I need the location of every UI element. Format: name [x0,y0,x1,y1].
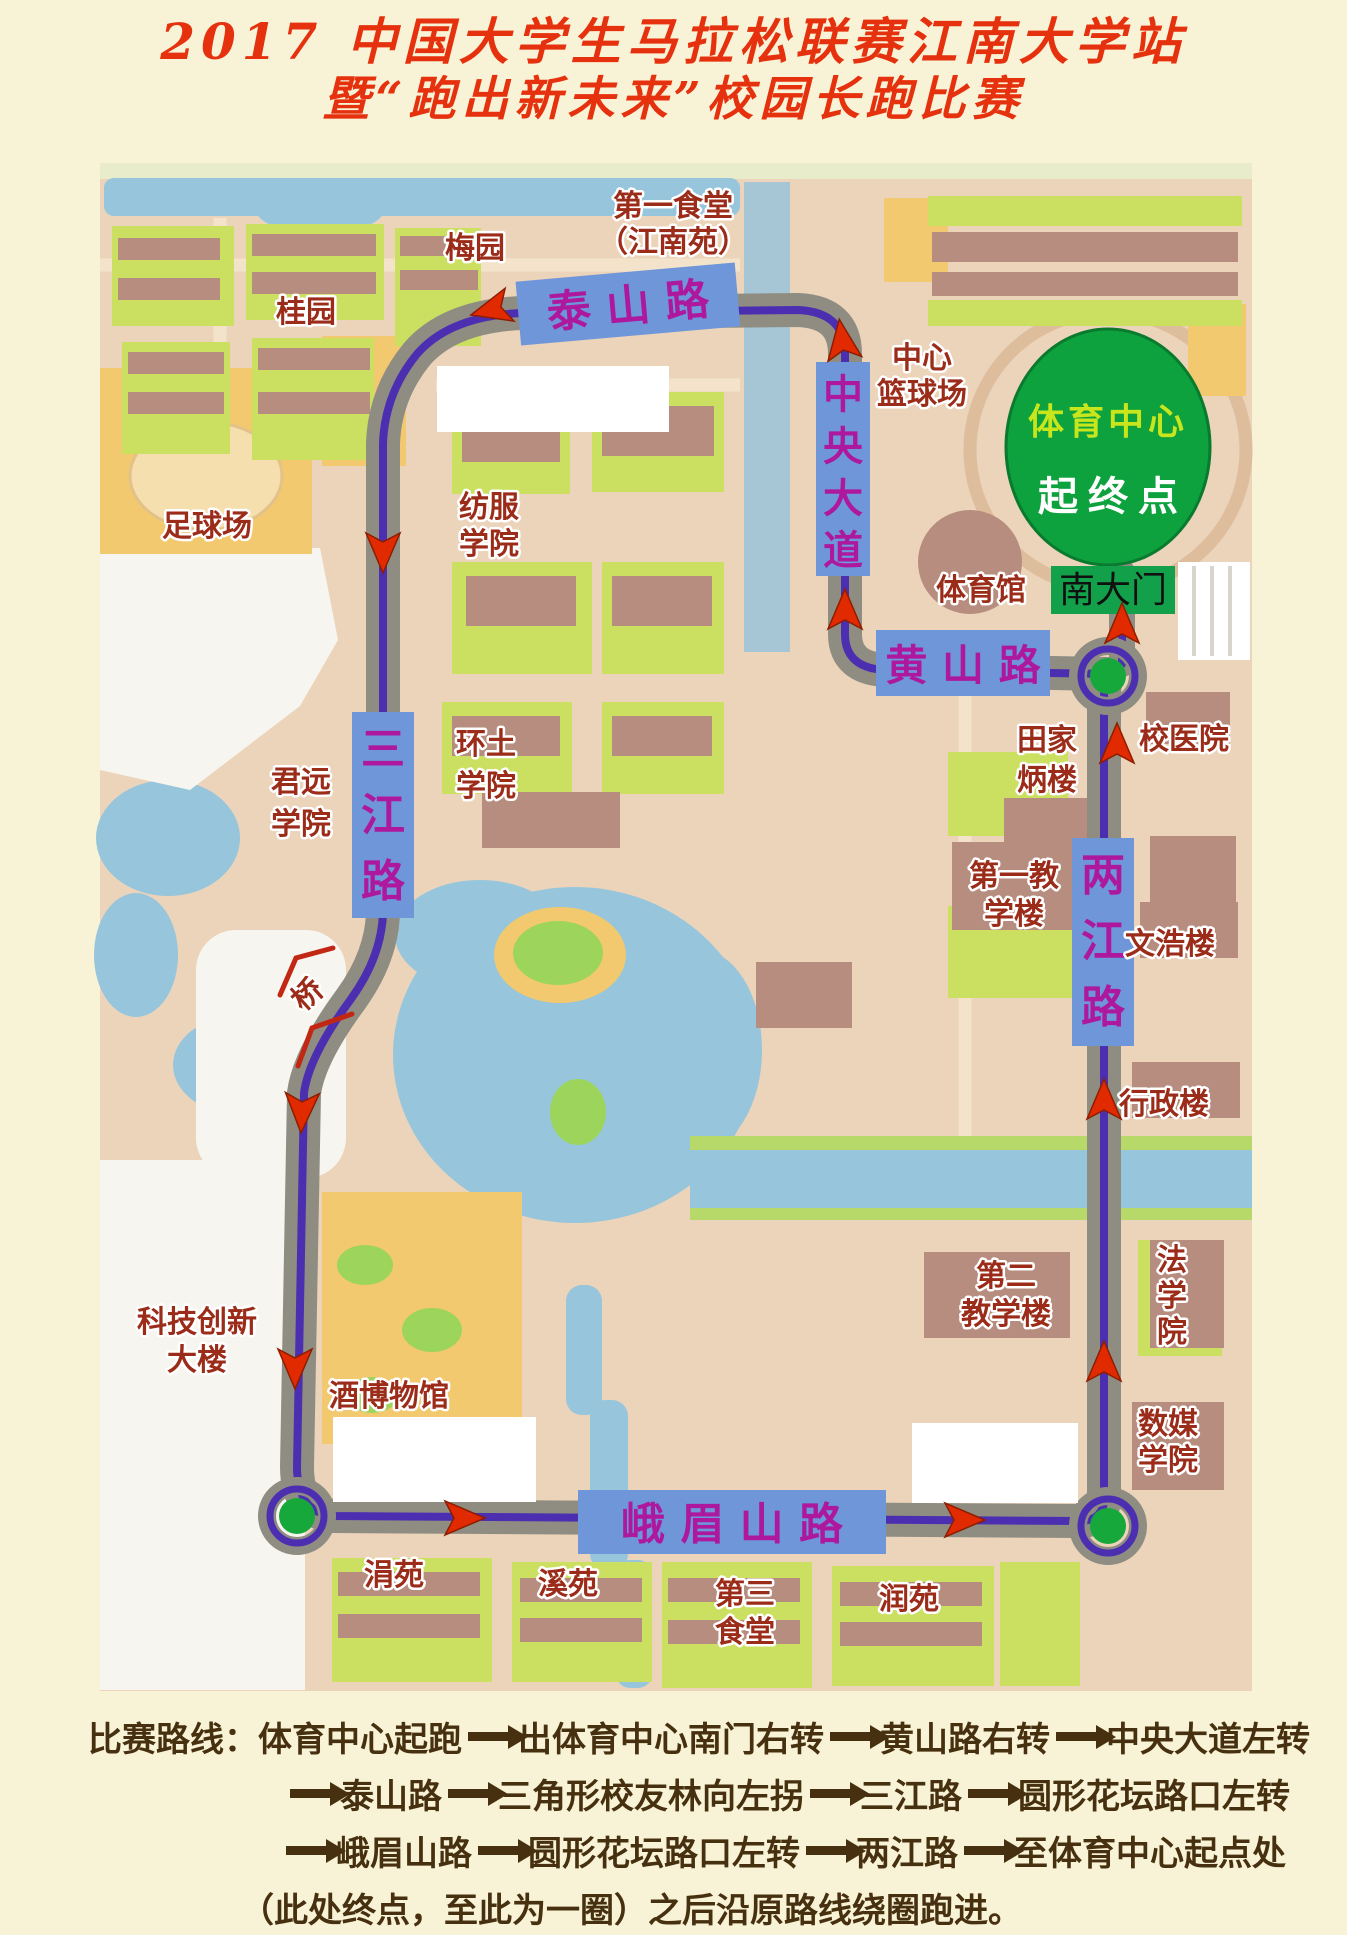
blank-label-patch [333,1417,536,1502]
road-banner-text: 三 [361,724,405,775]
label-no2-teaching-building: 教学楼 [961,1297,1051,1332]
water-area [638,950,762,1150]
label-xiyuan-dorm: 溪苑 [538,1567,598,1602]
route-step: 两江路 [856,1826,958,1875]
road-banner-text: 道 [823,528,863,574]
label-law-school: 法 [1157,1243,1187,1278]
road-banner-zhongyang: 中 央 大 道 [816,362,870,576]
route-step: 圆形花坛路口左转 [528,1826,800,1875]
right-arrow-icon [964,1846,1004,1855]
route-step: 三江路 [860,1769,962,1818]
building-block [118,278,220,300]
right-arrow-icon [830,1732,870,1741]
water-area [566,1285,602,1415]
label-scitech-building: 大楼 [167,1343,227,1378]
label-junyuan-college: 君远 [271,765,331,800]
building-block [932,232,1238,262]
route-step: 中央大道左转 [1106,1712,1310,1761]
water-area [94,893,178,1017]
route-description-row: 峨眉山路圆形花坛路口左转两江路至体育中心起点处 [280,1822,1278,1879]
label-juanyuan-dorm: 涓苑 [364,1558,424,1593]
label-basketball-court: 中心 [892,341,952,376]
building-block [118,238,220,260]
building-block [252,272,376,294]
road-banner-text: 中 [823,372,863,418]
route-description-row: （此处终点，至此为一圈）之后沿原路线绕圈跑进。 [240,1879,1278,1935]
label-wine-museum: 酒博物馆 [329,1379,449,1414]
roundabout-southeast [1078,1496,1138,1556]
tree-patch [337,1245,393,1285]
map-edge [100,163,1252,179]
page: 2017 中国大学生马拉松联赛江南大学站 暨“跑出新未来”校园长跑比赛 [0,0,1347,1935]
building-block [258,348,370,370]
label-basketball-court: 篮球场 [877,377,967,412]
road-banner-text: 江 [1081,916,1125,967]
label-runyuan-dorm: 润苑 [879,1582,939,1617]
page-title: 2017 中国大学生马拉松联赛江南大学站 暨“跑出新未来”校园长跑比赛 [0,12,1347,128]
label-no1-canteen: 第一食堂 [613,189,733,224]
campus-map: 泰 山 路 中 央 大 道 黄 山 路 三 江 路 两 江 路 峨 眉 山 路 [0,0,1347,1935]
route-description-row: 比赛路线：体育中心起跑出体育中心南门右转黄山路右转中央大道左转 [88,1708,1278,1765]
road-banner-text: 黄 山 路 [885,641,1041,690]
lawn-patch [1000,1562,1080,1686]
building-block [840,1622,982,1646]
roundabout-center [279,1498,315,1534]
right-arrow-icon [1056,1732,1096,1741]
start-finish-ellipse [1006,329,1210,565]
water-area [690,1150,1252,1208]
building-block [252,234,376,256]
label-junyuan-college: 学院 [271,807,331,842]
right-arrow-icon [286,1846,326,1855]
right-arrow-icon [968,1789,1008,1798]
label-law-school: 院 [1157,1315,1187,1350]
roundabout-center [1090,658,1126,694]
building-block [612,576,712,626]
label-no2-teaching-building: 第二 [976,1259,1036,1294]
building-block [932,272,1238,296]
river-bank [690,1136,1252,1150]
label-no1-teaching-building: 学楼 [984,897,1044,932]
route-description: 比赛路线：体育中心起跑出体育中心南门右转黄山路右转中央大道左转泰山路三角形校友林… [88,1708,1278,1935]
right-arrow-icon [290,1789,330,1798]
parking-strip [1178,562,1250,660]
title-line-2: 暨“跑出新未来”校园长跑比赛 [0,72,1347,128]
title-line-1: 2017 中国大学生马拉松联赛江南大学站 [0,12,1347,72]
label-football-field: 足球场 [162,509,252,544]
right-arrow-icon [468,1732,508,1741]
ground-patch [100,1160,305,1690]
label-law-school: 学 [1157,1279,1187,1314]
route-description-prefix: 比赛路线： [88,1712,258,1761]
route-step: 黄山路右转 [880,1712,1050,1761]
label-school-hospital: 校医院 [1139,722,1229,757]
water-area [96,780,240,896]
road-banner-text: 大 [823,476,863,522]
label-textile-college: 学院 [459,527,519,562]
route-step: 体育中心起跑 [258,1712,462,1761]
road-banner-text: 峨 眉 山 路 [621,1499,844,1550]
label-environment-college: 学院 [456,769,516,804]
right-arrow-icon [478,1846,518,1855]
building-block [400,270,478,290]
roundabout-northeast [1078,646,1138,706]
route-step: 峨眉山路 [336,1826,472,1875]
label-digital-media-college: 学院 [1138,1443,1198,1478]
building-block [338,1614,480,1638]
label-scitech-building: 科技创新 [137,1305,257,1340]
building-block [258,392,370,414]
building-block [466,576,576,626]
blank-label-patch [437,366,669,432]
building-block [756,962,852,1028]
label-tianjiabing-building: 炳楼 [1017,763,1077,798]
label-gymnasium: 体育馆 [936,573,1026,608]
road-banner-huangshan: 黄 山 路 [876,630,1050,696]
route-description-row: 泰山路三角形校友林向左拐三江路圆形花坛路口左转 [284,1765,1278,1822]
start-finish-text: 体育中心 [1028,402,1188,443]
route-step: 圆形花坛路口左转 [1018,1769,1290,1818]
right-arrow-icon [810,1789,850,1798]
south-gate-label: 南大门 [1051,566,1175,614]
route-step: 三角形校友林向左拐 [498,1769,804,1818]
river-bank [690,1208,1252,1220]
label-no1-canteen: （江南苑） [598,225,748,260]
label-environment-college: 环土 [456,727,516,762]
south-gate-text: 南大门 [1059,570,1167,611]
tree-patch [513,921,603,985]
label-digital-media-college: 数媒 [1138,1407,1199,1442]
building-block [612,716,712,756]
right-arrow-icon [448,1789,488,1798]
label-wenhao-building: 文浩楼 [1125,927,1215,962]
roundabout-center [1090,1508,1126,1544]
right-arrow-icon [806,1846,846,1855]
blank-label-patch [912,1423,1078,1503]
road-banner-text: 路 [1081,982,1126,1033]
label-tianjiabing-building: 田家 [1017,723,1077,758]
route-step: 至体育中心起点处 [1014,1826,1286,1875]
road-banner-sanjiang: 三 江 路 [352,712,414,918]
road-banner-emeishan: 峨 眉 山 路 [578,1490,886,1554]
building-block [128,352,224,374]
start-finish-text: 起终点 [1038,474,1188,520]
label-no3-canteen: 食堂 [715,1615,775,1650]
lawn-patch [928,300,1242,326]
label-no3-canteen: 第三 [715,1577,775,1612]
label-admin-building: 行政楼 [1118,1087,1209,1122]
route-step: 出体育中心南门右转 [518,1712,824,1761]
building-block [520,1618,642,1642]
label-textile-college: 纺服 [459,490,520,525]
road-banner-text: 央 [823,424,864,470]
start-finish-area: 体育中心 起终点 [1006,329,1210,565]
route-step: 泰山路 [340,1769,442,1818]
road-banner-text: 路 [361,856,406,907]
lawn-patch [928,196,1242,226]
label-no1-teaching-building: 第一教 [969,859,1059,894]
tree-patch [550,1079,606,1145]
label-meiyuan: 梅园 [445,231,505,266]
tree-patch [402,1308,462,1352]
building-block [128,392,224,414]
roundabout-southwest [267,1486,327,1546]
route-step: （此处终点，至此为一圈）之后沿原路线绕圈跑进。 [240,1883,1022,1932]
road-banner-text: 两 [1081,850,1125,901]
canal-water [744,182,790,652]
road-banner-text: 江 [361,790,405,841]
label-guiyuan: 桂园 [276,295,336,330]
